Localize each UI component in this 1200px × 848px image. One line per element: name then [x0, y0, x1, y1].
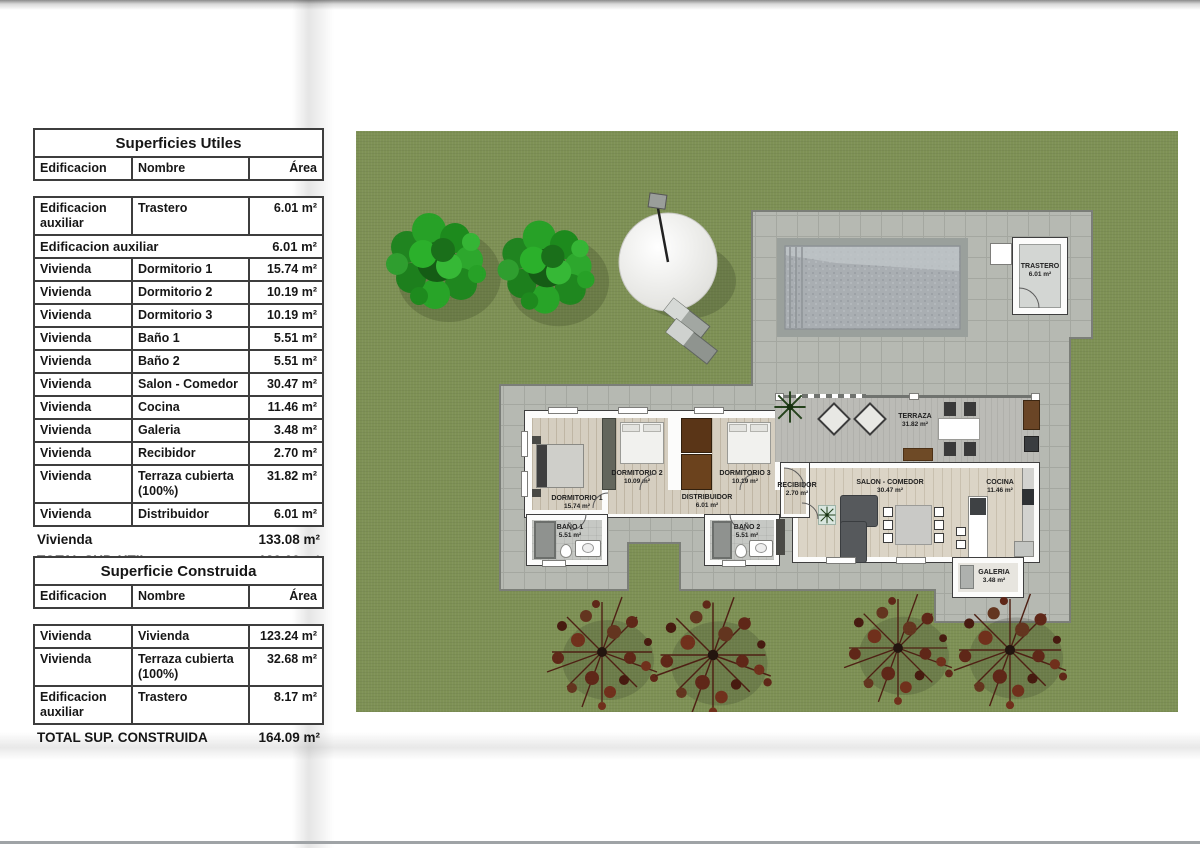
pillow	[750, 424, 768, 432]
window	[826, 557, 856, 564]
subtotal-row-aux: Edificacion auxiliar 6.01 m²	[35, 234, 322, 257]
dining-chair	[934, 520, 944, 530]
room-label-dormitorio1: DORMITORIO 1 15.74 m²	[551, 494, 602, 512]
col-nombre: Nombre	[133, 586, 250, 607]
table-title: Superficies Utiles	[35, 130, 322, 158]
terrace-chair-dark	[944, 402, 956, 416]
kitchen-sink	[1022, 489, 1034, 505]
room-label-bano1: BAÑO 1 5.51 m²	[557, 523, 583, 541]
toilet	[735, 544, 747, 558]
room-label-terraza: TERRAZA 31.82 m²	[898, 412, 931, 430]
sink-basin	[582, 543, 594, 553]
room-label-trastero: TRASTERO 6.01 m²	[1021, 262, 1060, 280]
table-superficie-construida: Superficie Construida Edificacion Nombre…	[33, 556, 324, 746]
window	[618, 407, 648, 414]
table-row: ViviendaDormitorio 310.19 m²	[35, 303, 322, 326]
fridge	[1014, 541, 1034, 557]
plant-mat	[818, 505, 836, 525]
col-area: Área	[250, 158, 322, 179]
room-label-cocina: COCINA 11.46 m²	[986, 478, 1014, 496]
dining-chair	[883, 533, 893, 543]
terraza-post	[775, 393, 784, 401]
pillow	[643, 424, 661, 432]
room-label-dormitorio2: DORMITORIO 2 10.09 m²	[611, 469, 662, 487]
bbq-cabinet	[1023, 400, 1040, 430]
room-label-galeria: GALERIA 3.48 m²	[978, 568, 1010, 586]
dining-chair	[883, 520, 893, 530]
pillow	[622, 424, 640, 432]
col-edificacion: Edificacion	[35, 158, 133, 179]
table-column-headers: Edificacion Nombre Área	[35, 586, 322, 607]
room-label-bano2: BAÑO 2 5.51 m²	[734, 523, 760, 541]
nightstand	[532, 489, 541, 497]
window	[694, 407, 724, 414]
table-row: ViviendaDormitorio 115.74 m²	[35, 257, 322, 280]
floor-plan-sheet: Superficies Utiles Edificacion Nombre Ár…	[0, 0, 1200, 848]
pillow	[729, 424, 747, 432]
col-nombre: Nombre	[133, 158, 250, 179]
toilet	[560, 544, 572, 558]
table-gap	[33, 609, 324, 624]
table-superficies-utiles: Superficies Utiles Edificacion Nombre Ár…	[33, 128, 324, 569]
room-label-recibidor: RECIBIDOR 2.70 m²	[777, 481, 816, 499]
terraza-opening	[796, 394, 866, 398]
table-row: Edificacion auxiliar Trastero 6.01 m²	[35, 198, 322, 234]
total-sup-construida: TOTAL SUP. CONSTRUIDA 164.09 m²	[33, 725, 324, 746]
doormat	[903, 448, 933, 461]
table-row: ViviendaDistribuidor6.01 m²	[35, 502, 322, 525]
table-column-headers: Edificacion Nombre Área	[35, 158, 322, 179]
terrace-table	[938, 418, 980, 440]
terrace-chair-dark	[964, 442, 976, 456]
table-row: ViviendaSalon - Comedor30.47 m²	[35, 372, 322, 395]
table-body-box: ViviendaVivienda123.24 m² ViviendaTerraz…	[33, 624, 324, 725]
outdoor-pad	[990, 243, 1012, 265]
shower	[534, 521, 556, 559]
table-body-box: Edificacion auxiliar Trastero 6.01 m² Ed…	[33, 196, 324, 527]
kitchen-stool	[956, 540, 966, 549]
table-header-box: Superficie Construida Edificacion Nombre…	[33, 556, 324, 609]
shower	[712, 521, 732, 559]
dining-chair	[934, 507, 944, 517]
wardrobe-brown	[681, 418, 712, 453]
dining-table	[895, 505, 932, 545]
room-label-distribuidor: DISTRIBUIDOR 6.01 m²	[682, 493, 733, 511]
page-top-edge	[0, 0, 1200, 10]
cooktop	[970, 498, 986, 515]
window	[521, 471, 528, 497]
washer	[960, 565, 974, 589]
table-row: ViviendaVivienda123.24 m²	[35, 626, 322, 647]
table-row: ViviendaTerraza cubierta (100%)31.82 m²	[35, 464, 322, 502]
outdoor-sink	[1024, 436, 1039, 452]
table-row: Edificacion auxiliarTrastero8.17 m²	[35, 685, 322, 723]
table-row: ViviendaBaño 25.51 m²	[35, 349, 322, 372]
dining-chair	[883, 507, 893, 517]
sink-basin	[755, 543, 767, 553]
kitchen-stool	[956, 527, 966, 536]
table-row: ViviendaTerraza cubierta (100%)32.68 m²	[35, 647, 322, 685]
table-row: ViviendaCocina11.46 m²	[35, 395, 322, 418]
table-header-box: Superficies Utiles Edificacion Nombre Ár…	[33, 128, 324, 181]
terrace-chair-dark	[964, 402, 976, 416]
dining-chair	[934, 533, 944, 543]
window	[542, 560, 566, 567]
table-row: ViviendaGaleria3.48 m²	[35, 418, 322, 441]
terraza-post	[909, 393, 919, 400]
table-row: ViviendaBaño 15.51 m²	[35, 326, 322, 349]
table-row: ViviendaDormitorio 210.19 m²	[35, 280, 322, 303]
window	[722, 560, 746, 567]
terrace-chair-dark	[944, 442, 956, 456]
hall-cabinet	[776, 519, 785, 555]
table-title: Superficie Construida	[35, 558, 322, 586]
page-bottom-edge	[0, 841, 1200, 844]
col-area: Área	[250, 586, 322, 607]
nightstand	[532, 436, 541, 444]
site-plan: TRASTERO 6.01 m² TERRAZA 31.82 m² DORMIT…	[356, 131, 1178, 712]
window	[548, 407, 578, 414]
subtotal-vivienda: Vivienda 133.08 m²	[33, 527, 324, 548]
window	[521, 431, 528, 457]
swimming-pool	[781, 242, 964, 333]
col-edificacion: Edificacion	[35, 586, 133, 607]
bed-pillows	[537, 445, 547, 487]
window	[896, 557, 926, 564]
room-label-salon: SALON - COMEDOR 30.47 m²	[856, 478, 923, 496]
wardrobe-brown	[681, 454, 712, 490]
table-gap	[33, 181, 324, 196]
room-label-dormitorio3: DORMITORIO 3 10.19 m²	[719, 469, 770, 487]
table-row: ViviendaRecibidor2.70 m²	[35, 441, 322, 464]
